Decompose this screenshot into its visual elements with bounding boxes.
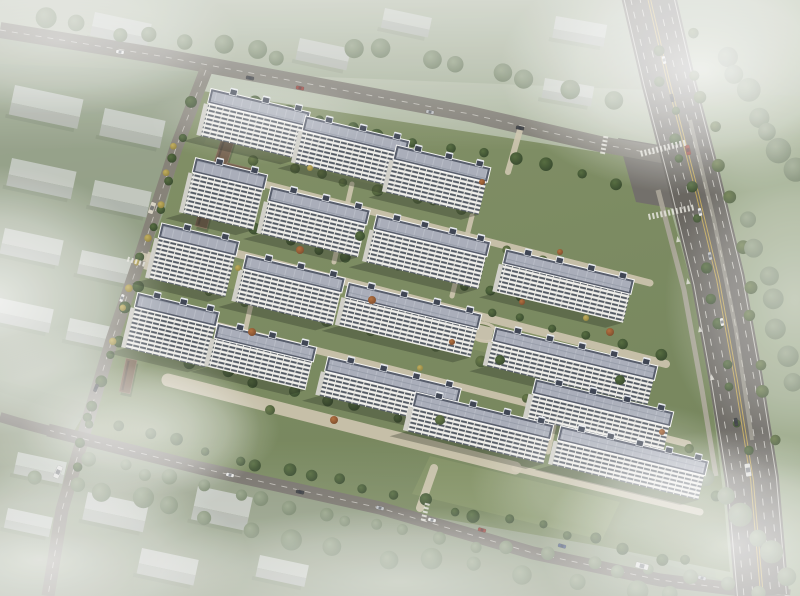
atmosphere-tint — [0, 0, 800, 596]
aerial-site-rendering — [0, 0, 800, 596]
fog-overlay-layer — [0, 0, 800, 596]
rendering-canvas — [0, 0, 800, 596]
